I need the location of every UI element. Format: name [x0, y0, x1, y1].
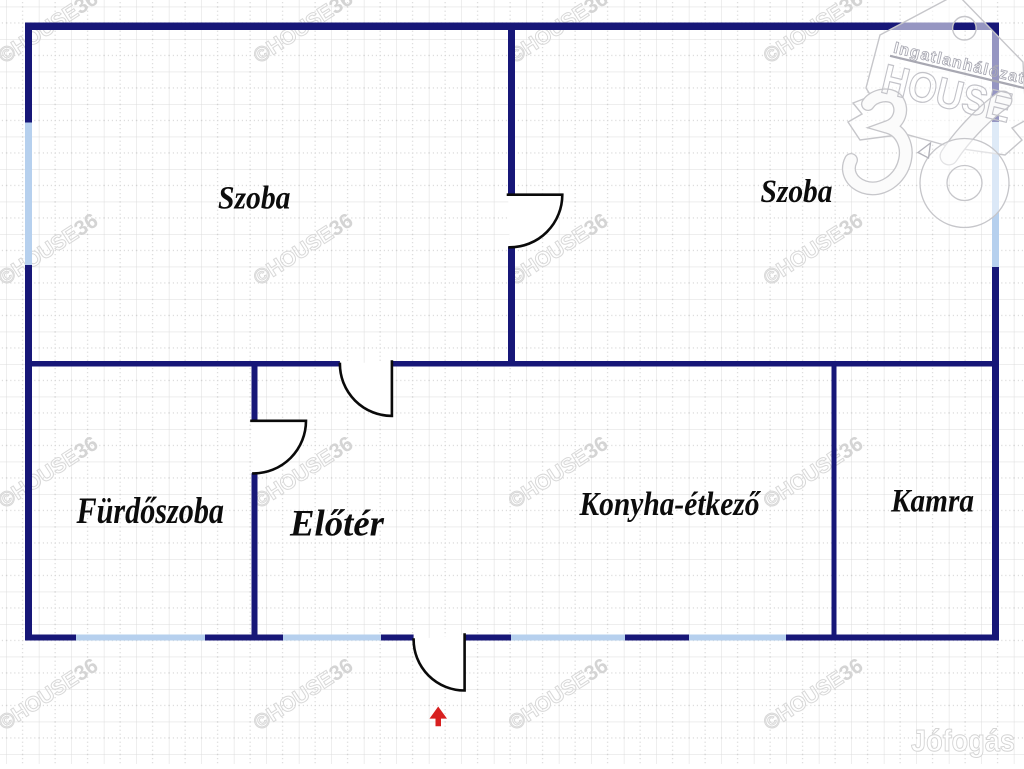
- svg-text:Jófogás: Jófogás: [911, 723, 1015, 758]
- svg-text:Fürdőszoba: Fürdőszoba: [76, 491, 224, 532]
- svg-text:Szoba: Szoba: [218, 181, 291, 217]
- svg-text:Szoba: Szoba: [761, 174, 833, 210]
- svg-text:Konyha-étkező: Konyha-étkező: [579, 486, 762, 523]
- svg-text:Kamra: Kamra: [890, 484, 974, 520]
- svg-text:Előtér: Előtér: [289, 504, 385, 545]
